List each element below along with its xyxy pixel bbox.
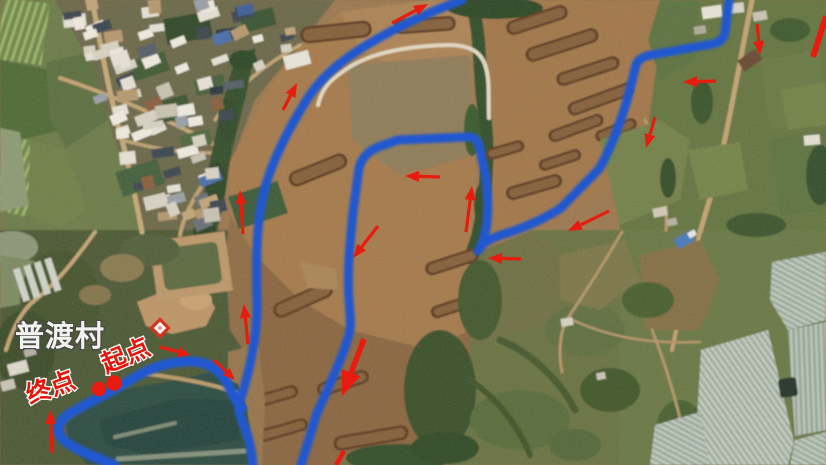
svg-text:普渡村: 普渡村 <box>15 320 105 353</box>
